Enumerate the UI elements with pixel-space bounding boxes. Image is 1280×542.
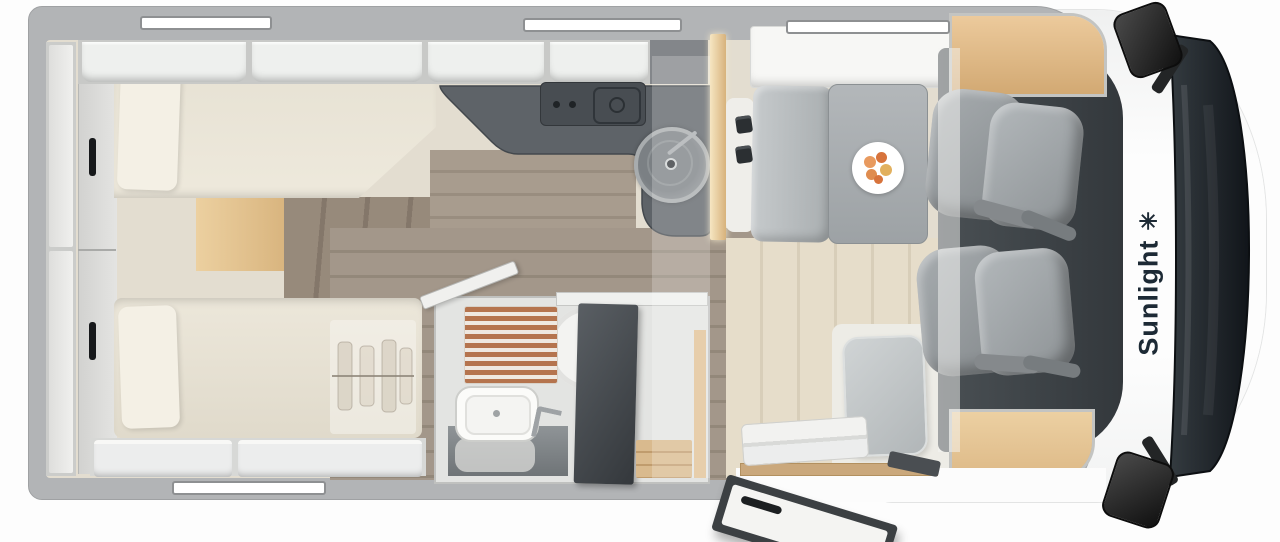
rear-shelf-upper	[49, 45, 73, 247]
fruit-icon	[874, 175, 883, 184]
rear-wardrobe-divider	[78, 249, 116, 251]
brand-star-icon: ✳	[1138, 210, 1161, 230]
bed-drawer-front	[238, 440, 422, 477]
window-slot	[786, 20, 950, 34]
cooktop-burner-center	[609, 97, 625, 113]
fruit-icon	[876, 152, 887, 163]
floor-oak-step	[196, 197, 284, 271]
fruit-icon	[864, 156, 876, 168]
toilet-cabinet-door	[574, 303, 639, 485]
seatbelt-bracket-icon	[735, 145, 753, 164]
shower-slat-mat	[464, 306, 558, 384]
dinette-wood-partition	[710, 34, 726, 240]
washbasin-reflection	[455, 438, 535, 472]
overhead-cabinet	[550, 42, 648, 82]
fruit-plate	[852, 142, 904, 194]
washbasin	[455, 386, 539, 442]
seatbelt-bracket-icon	[735, 115, 753, 134]
cab-overhead-wood-panel	[952, 16, 1104, 94]
cooktop	[540, 82, 646, 126]
rear-wardrobe-doors	[78, 44, 117, 474]
overhead-bed-light-band	[652, 56, 710, 478]
window-slot	[172, 481, 326, 495]
dropdown-bed-panel	[750, 26, 954, 88]
dinette-bench-seat	[751, 85, 834, 242]
overhead-cabinet	[428, 42, 544, 82]
ghost-wardrobe-overlay	[330, 320, 416, 434]
motorhome-floorplan-top-view: Sunlight ✳	[0, 0, 1280, 542]
overhead-cabinet	[82, 42, 246, 82]
side-mirror-bottom	[1106, 426, 1216, 542]
cab-pillar-overlay	[938, 48, 960, 452]
wardrobe-handle-icon	[89, 322, 96, 360]
hanging-clothes-icon	[330, 320, 416, 434]
rear-shelf-lower	[49, 251, 73, 473]
fruit-icon	[880, 164, 892, 176]
cooktop-knob-icon	[569, 101, 576, 108]
brand-logo-text: Sunlight	[1134, 240, 1165, 356]
side-mirror-top	[1118, 0, 1228, 120]
cooktop-knob-icon	[553, 101, 560, 108]
bed-drawer-front	[94, 440, 232, 477]
window-slot	[523, 18, 682, 32]
bed-bottom-pillow	[118, 305, 180, 429]
washbasin-drain-icon	[493, 410, 500, 417]
wardrobe-handle-icon	[89, 138, 96, 176]
overhead-cabinet	[252, 42, 422, 82]
window-slot	[140, 16, 272, 30]
brand-logo: Sunlight ✳	[1124, 163, 1174, 403]
entry-steps	[741, 416, 870, 467]
